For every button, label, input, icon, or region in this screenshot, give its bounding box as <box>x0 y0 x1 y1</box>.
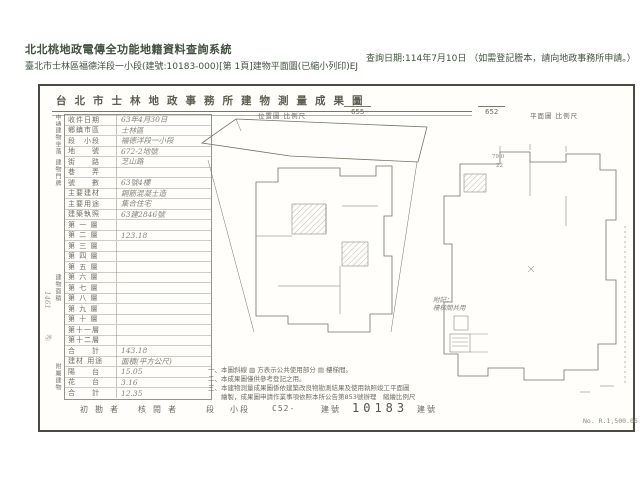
form-row: 第十二層 <box>65 336 211 347</box>
form-row-value: 63建2846號 <box>117 209 211 220</box>
form-row-value: 12.35 <box>117 389 211 398</box>
form-row-label: 街 路 <box>65 157 117 167</box>
plan-dimension: 79.0 <box>492 154 504 160</box>
form-group-label: 建物門牌 <box>53 157 62 189</box>
scanned-document: 台北市士林地政事務所建物測量成果圖 位置圖 比例尺 655 652 平面圖 比例… <box>38 84 635 432</box>
form-row-label: 合 計 <box>65 388 117 398</box>
form-row-value: 123.18 <box>117 231 211 240</box>
form-row-value: 鋼筋混凝土造 <box>117 188 211 199</box>
form-group-label: 附屬建物 <box>53 356 62 398</box>
document-breadcrumb: 臺北市士林區福德洋段一小段(建號:10183-000)[第 1頁]建物平面圖(已… <box>25 59 358 72</box>
form-row-label: 第十一層 <box>65 325 117 335</box>
footer-item: 初勘者 <box>80 404 125 415</box>
form-row-value: 士林區 <box>117 125 211 136</box>
form-row: 建材 用途面積(平方公尺) <box>65 357 211 368</box>
form-row: 第 三 層 <box>65 241 211 252</box>
plan-dimension: 22 <box>496 163 503 169</box>
form-row-label: 第 七 層 <box>65 283 117 293</box>
form-row: 第 九 層 <box>65 304 211 315</box>
location-parcel-number: 655 <box>344 106 371 116</box>
footer-item: C52- <box>272 404 295 413</box>
form-group-label: 建物面積 <box>53 219 62 356</box>
form-row-value: 15.05 <box>117 367 211 376</box>
form-row-value: 福德洋段一小段 <box>117 135 211 146</box>
margin-note: ㉙ <box>43 334 53 341</box>
form-row: 第 八 層 <box>65 294 211 305</box>
form-row-label: 建材 用途 <box>65 356 117 366</box>
form-row-label: 第 九 層 <box>65 304 117 314</box>
form-row: 第 一 層 <box>65 220 211 231</box>
form-row-label: 第 十 層 <box>65 314 117 324</box>
form-row-label: 第 八 層 <box>65 293 117 303</box>
form-row-label: 第 四 層 <box>65 251 117 261</box>
form-row: 陽 台15.05 <box>65 367 211 378</box>
form-row: 第 二 層123.18 <box>65 231 211 242</box>
query-date: 查詢日期:114年7月10日 （如需登記謄本，請向地政事務所申請。） <box>366 51 636 64</box>
plan-scale-caption: 平面圖 比例尺 <box>530 110 578 120</box>
form-row-label: 第 五 層 <box>65 262 117 272</box>
form-row: 街 路芝山路 <box>65 157 211 168</box>
footer-item: 建號 <box>417 404 437 415</box>
form-row-value: 143.18 <box>117 346 211 355</box>
location-scale-caption: 位置圖 比例尺 <box>258 110 306 120</box>
form-row-label: 地 號 <box>65 146 117 156</box>
form-row: 花 台3.16 <box>65 378 211 389</box>
footer-item: 建號 <box>321 404 341 415</box>
form-row-label: 陽 台 <box>65 367 117 377</box>
document-notes: 一、本圖斜線 ▨ 方表示公共使用部分 ▤ 樓梯間。二、本成果圖僅供參考登記之用。… <box>208 366 415 402</box>
form-row: 第 七 層 <box>65 283 211 294</box>
form-row-label: 鄉鎮市區 <box>65 125 117 135</box>
form-row: 第十一層 <box>65 325 211 336</box>
form-row-label: 主要建材 <box>65 188 117 198</box>
form-row-value: 63號4樓 <box>117 177 211 188</box>
form-number: No. R.1,500.06 <box>583 417 638 425</box>
form-row-label: 第 六 層 <box>65 272 117 282</box>
form-row: 第 四 層 <box>65 252 211 263</box>
form-row: 第 十 層 <box>65 315 211 326</box>
form-row-value: 63年4月30日 <box>117 114 211 125</box>
app-window: { "header": { "system_title": "北北桃地政電傳全功… <box>0 0 640 480</box>
form-row: 第 六 層 <box>65 273 211 284</box>
form-row-label: 第 一 層 <box>65 220 117 230</box>
form-row: 第 五 層 <box>65 262 211 273</box>
form-row-label: 第十二層 <box>65 335 117 345</box>
form-row-value: 3.16 <box>117 378 211 387</box>
form-row-value: 集合住宅 <box>117 198 211 209</box>
form-row: 合 計12.35 <box>65 388 211 399</box>
form-group-label: 建物坐落 <box>53 125 62 157</box>
document-title: 台北市士林地政事務所建物測量成果圖 <box>56 93 371 108</box>
plan-annex-note: 附記： 樓梯間共用 <box>433 296 466 312</box>
form-row-label: 收件日期 <box>65 115 117 125</box>
form-row-label: 花 台 <box>65 377 117 387</box>
form-row-label: 第 三 層 <box>65 241 117 251</box>
form-row-value: 面積(平方公尺) <box>117 356 211 367</box>
form-row-label: 號 數 <box>65 178 117 188</box>
form-row-value: 672-2地號 <box>117 146 211 157</box>
form-row: 建築執照63建2846號 <box>65 210 211 221</box>
note-line: 三、本建物測量成果圖係依建築改良物勘測結果及使用執照竣工平面圖 <box>208 384 415 393</box>
survey-form-table: 收件日期63年4月30日鄉鎮市區士林區段 小段福德洋段一小段地 號672-2地號… <box>64 114 212 400</box>
note-line: 二、本成果圖僅供參考登記之用。 <box>208 375 415 384</box>
plan-scale-value: 652 <box>478 106 505 116</box>
footer-item: 段 <box>206 404 216 415</box>
footer-item: 小段 <box>230 404 250 415</box>
form-row-label: 巷 弄 <box>65 167 117 177</box>
form-row-label: 合 計 <box>65 346 117 356</box>
form-row-label: 段 小段 <box>65 136 117 146</box>
form-row-label: 建築執照 <box>65 209 117 219</box>
note-line: 一、本圖斜線 ▨ 方表示公共使用部分 ▤ 樓梯間。 <box>208 366 415 375</box>
building-number-stamp: 10183 <box>352 401 408 415</box>
footer-item: 核閱者 <box>138 404 183 415</box>
form-row-value: 芝山路 <box>117 156 211 167</box>
form-row-label: 主要用途 <box>65 199 117 209</box>
form-row-label: 第 二 層 <box>65 230 117 240</box>
margin-note: 1461 <box>43 291 51 309</box>
system-title: 北北桃地政電傳全功能地籍資料查詢系統 <box>25 41 232 57</box>
